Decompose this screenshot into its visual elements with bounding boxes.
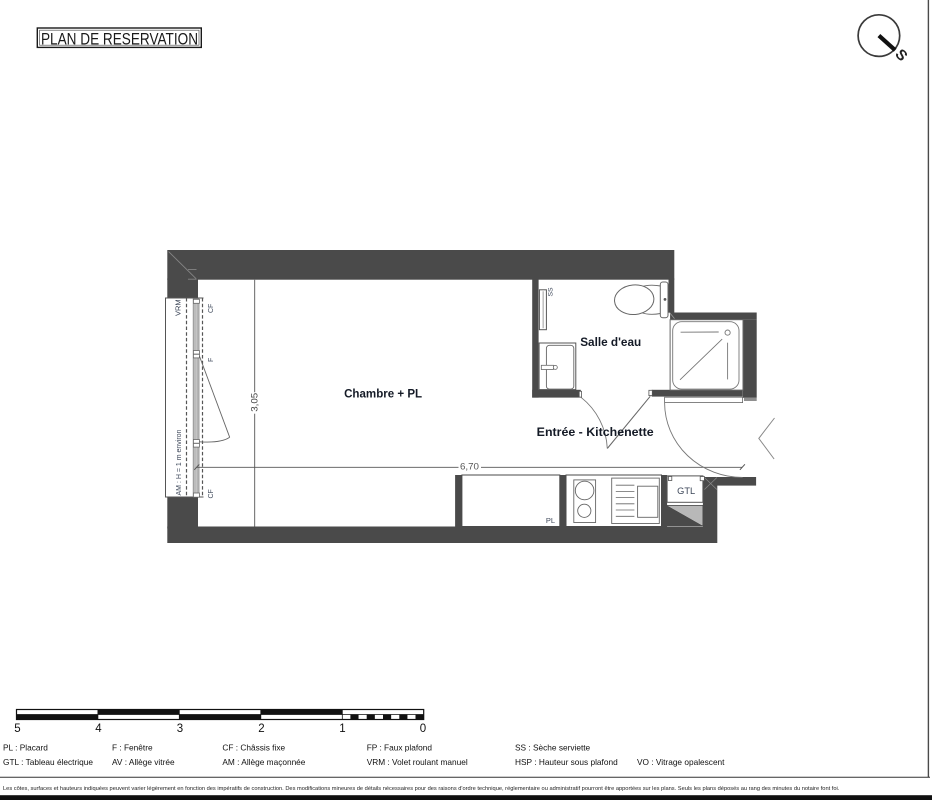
svg-text:PL: PL — [546, 516, 555, 525]
svg-text:PL : Placard: PL : Placard — [3, 743, 48, 753]
svg-text:PLAN DE RESERVATION: PLAN DE RESERVATION — [41, 31, 198, 49]
svg-text:AM : Allège maçonnée: AM : Allège maçonnée — [222, 757, 305, 767]
svg-text:VO : Vitrage opalescent: VO : Vitrage opalescent — [637, 757, 725, 767]
svg-text:0: 0 — [420, 723, 426, 735]
svg-text:FP : Faux plafond: FP : Faux plafond — [367, 743, 433, 753]
svg-text:5: 5 — [14, 723, 20, 735]
svg-text:F: F — [208, 358, 215, 362]
svg-text:SS: SS — [548, 287, 555, 297]
svg-text:6,70: 6,70 — [460, 462, 479, 472]
svg-text:Salle d'eau: Salle d'eau — [580, 335, 641, 349]
svg-text:2: 2 — [258, 723, 264, 735]
svg-text:SS : Sèche serviette: SS : Sèche serviette — [515, 743, 591, 753]
svg-text:CF : Châssis fixe: CF : Châssis fixe — [222, 743, 285, 753]
svg-text:Chambre + PL: Chambre + PL — [344, 386, 422, 400]
svg-text:HSP : Hauteur sous plafond: HSP : Hauteur sous plafond — [515, 757, 618, 767]
svg-text:CF: CF — [208, 489, 215, 498]
svg-text:AV : Allège vitrée: AV : Allège vitrée — [112, 757, 175, 767]
svg-text:3: 3 — [177, 723, 183, 735]
svg-text:Les côtes, surfaces et hauteur: Les côtes, surfaces et hauteurs indiquée… — [3, 786, 840, 792]
svg-text:F : Fenêtre: F : Fenêtre — [112, 743, 153, 753]
svg-text:VRM : Volet roulant manuel: VRM : Volet roulant manuel — [367, 757, 468, 767]
svg-text:3,05: 3,05 — [250, 393, 260, 412]
svg-text:1: 1 — [339, 723, 345, 735]
svg-text:AM : H = 1 m environ: AM : H = 1 m environ — [176, 429, 183, 495]
svg-text:VRM: VRM — [174, 299, 183, 316]
svg-text:4: 4 — [95, 723, 102, 735]
svg-text:Entrée - Kitchenette: Entrée - Kitchenette — [537, 425, 654, 439]
svg-text:GTL : Tableau électrique: GTL : Tableau électrique — [3, 757, 93, 767]
svg-text:CF: CF — [208, 304, 215, 313]
svg-text:GTL: GTL — [677, 486, 695, 496]
